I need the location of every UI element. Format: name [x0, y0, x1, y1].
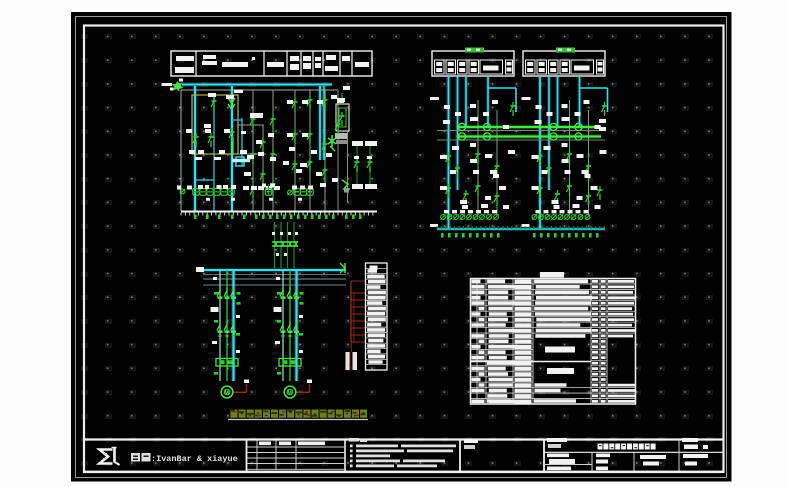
svg-text:M: M: [287, 391, 292, 397]
svg-text::IvanBar & xiayue: :IvanBar & xiayue: [151, 454, 238, 464]
svg-text:M: M: [224, 391, 229, 397]
